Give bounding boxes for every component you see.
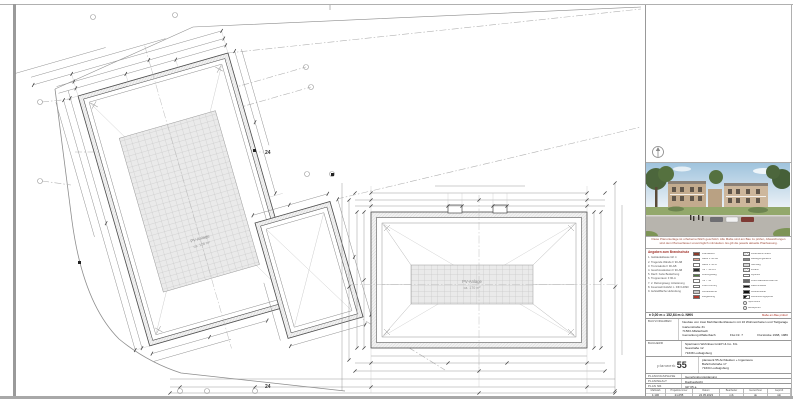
sheet-border-bottom [0,396,793,399]
site-plan-drawing: PV-Anlage ca. 128 m² [15,5,645,396]
project-row: Bauvorhaben Neubau von zwei Mehrfamilien… [646,318,791,340]
architect-city: 71634 Ludwigsburg [702,366,788,370]
date-value: 24.05.2023 [693,394,719,396]
project-number-value: 21-055 [666,394,692,396]
legend-color-swatch [693,285,700,289]
plot-number: 24 [265,150,271,156]
legend-item: Messpunkt [743,305,790,310]
legend-text-line: 9. Aufstellfläche Hubrettung [648,290,690,294]
plan-sheet: PV-Anlage ca. 128 m² [0,0,793,400]
right-building: PV-Anlage ca. 170 m² [350,195,620,373]
project-parcels: Flurstücke 1968, 1986 [757,333,788,337]
title-block: Diese Planunterlage ist urheberrechtlich… [645,5,791,396]
legend-circle-symbol [743,301,747,305]
architect-row: planwerk55 planwerk 55 Architekten + Ing… [646,356,791,373]
north-arrow-icon [651,145,665,159]
legend-color-swatch [743,285,750,289]
copyright-note: Diese Planunterlage ist urheberrechtlich… [646,237,791,248]
legend: Angaben zum Brandschutz 1. Gebäudeklasse… [646,248,791,312]
legend-heading: Angaben zum Brandschutz [648,251,690,255]
project-flur: Flur-Nr. 7 [730,333,743,337]
architect-logo: planwerk55 [646,357,699,373]
project-rendering-image [646,162,791,238]
drawn-by-value: sk [744,394,767,396]
pv-label-right: PV-Anlage [462,279,482,284]
legend-color-swatch [693,274,700,278]
level-datum: ± 0,00 m = 152,64 m ü. NHN [649,314,693,317]
legend-color-swatch [743,274,750,278]
legend-color-swatch [743,295,750,299]
checked-by-value: mb [768,394,790,396]
project-district: Gemarkung Affalterbach [682,333,715,337]
project-row-label: Bauvorhaben [646,319,679,340]
pv-area-label-right: ca. 170 m² [464,286,482,290]
scale-value: 1:100 [646,394,665,396]
legend-item: Steigleitung [693,295,740,300]
editor-value: mb [720,394,743,396]
left-building: PV-Anlage ca. 128 m² [15,12,320,385]
project-title: Neubau von zwei Mehrfamilienhäusern mit … [682,320,788,324]
client-city: 71638 Ludwigsburg [685,351,788,355]
legend-color-swatch [743,263,750,267]
legend-color-swatch [743,279,750,283]
title-block-table: Maßstab1:100 Projektnummer21-055 Datum24… [646,388,791,396]
legend-color-swatch [693,290,700,294]
plot-number: 24 [265,384,271,390]
legend-color-swatch [693,268,700,272]
legend-color-swatch [743,268,750,272]
legend-color-swatch [693,279,700,283]
client-row-label: Bauherr [646,341,682,356]
legend-color-swatch [693,263,700,267]
sheet-border-right [791,4,792,396]
legend-color-swatch [743,252,750,256]
legend-color-swatch [743,290,750,294]
legend-color-swatch [693,258,700,262]
title-block-spacer [646,5,791,162]
legend-circle-symbol [743,306,747,310]
level-note: Maße am Bau prüfen! [762,315,788,318]
legend-color-swatch [743,258,750,262]
client-row: Bauherr Spielmann Wohnbau GmbH & Co. KG … [646,340,791,356]
legend-color-swatch [693,295,700,299]
legend-color-swatch [693,252,700,256]
